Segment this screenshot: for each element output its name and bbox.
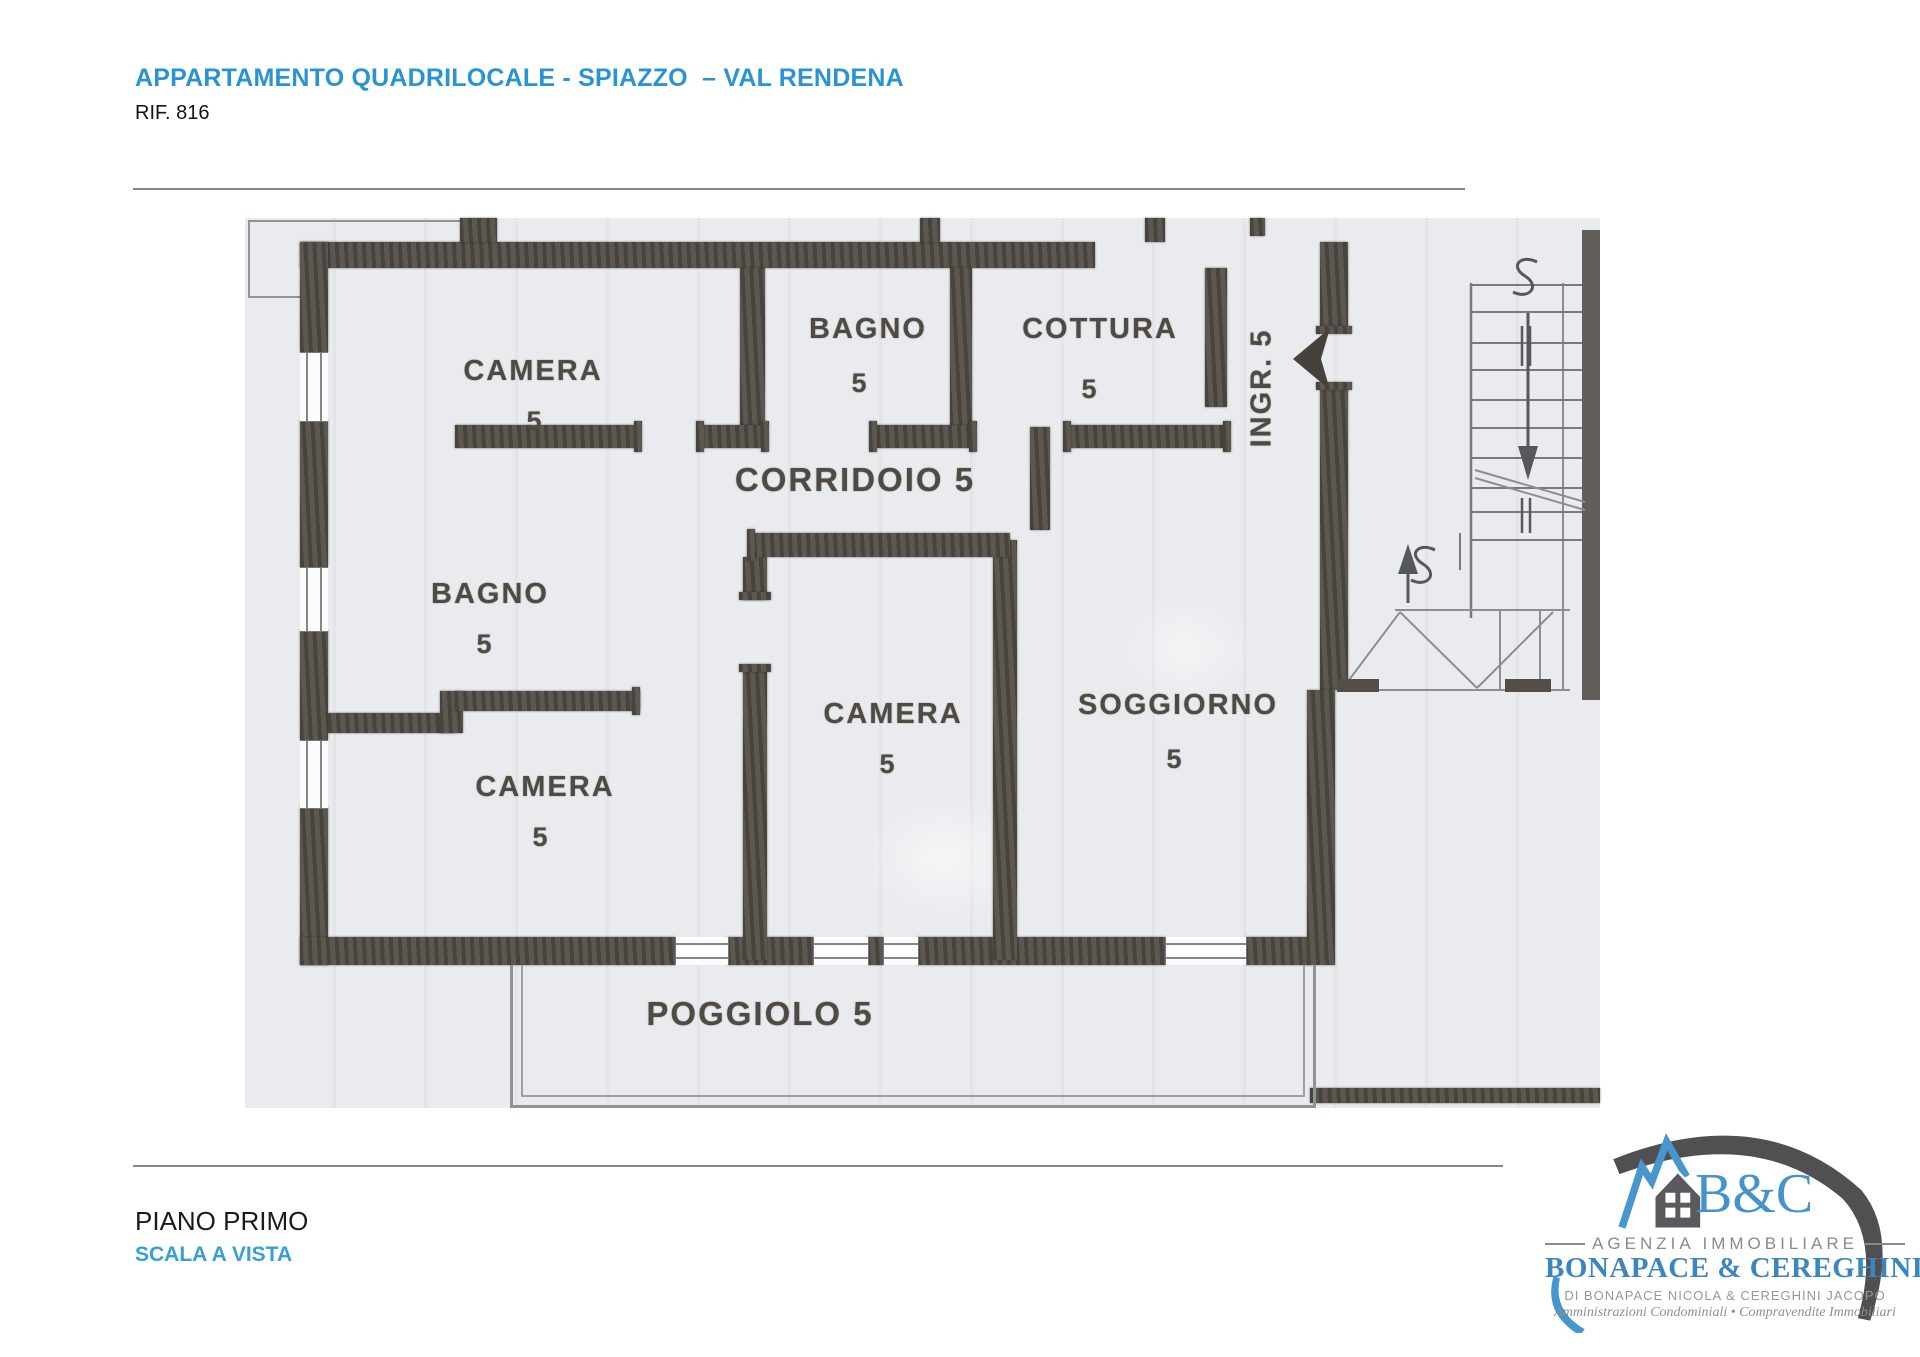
room-label-soggiorno: SOGGIORNO <box>1078 689 1278 722</box>
room-label-corridoio: CORRIDOIO 5 <box>735 461 975 499</box>
agency-name: BONAPACE & CEREGHINI <box>1545 1252 1905 1285</box>
room-label-bagno-1: BAGNO <box>809 313 927 346</box>
room-size-camera-3: 5 <box>879 749 896 780</box>
wall-segment <box>300 242 1095 268</box>
wall-segment <box>1205 268 1227 407</box>
wall-segment <box>1310 1088 1600 1103</box>
wall-segment <box>455 425 640 448</box>
stairwell-drawing <box>1285 218 1600 720</box>
stair-down-arrow <box>1518 446 1538 480</box>
door-jamb <box>696 421 704 452</box>
wall-segment <box>1250 218 1265 236</box>
room-size-cottura: 5 <box>1081 374 1098 405</box>
room-label-poggiolo: POGGIOLO 5 <box>646 995 873 1033</box>
wall-segment <box>920 218 940 242</box>
window-marker <box>1165 937 1247 965</box>
break-line-symbol <box>1513 259 1537 294</box>
reference-number: RIF. 816 <box>135 102 209 125</box>
room-label-bagno-2: BAGNO <box>431 578 549 611</box>
agency-logo: B&C AGENZIA IMMOBILIARE BONAPACE & CEREG… <box>1545 1122 1905 1340</box>
landing-wall <box>1337 679 1379 692</box>
wall-segment <box>1245 937 1310 965</box>
wall-segment <box>328 713 455 733</box>
floorplan-scan: CAMERA 5 BAGNO 5 COTTURA 5 CORRIDOIO 5 I… <box>245 218 1600 1108</box>
wall-segment <box>300 937 675 965</box>
wall-segment <box>300 630 328 740</box>
door-jamb <box>869 421 877 452</box>
balcony-outline <box>510 965 1316 1108</box>
wall-segment <box>300 242 328 352</box>
wall-segment <box>1067 425 1227 448</box>
window-marker <box>300 740 328 809</box>
wall-segment <box>1307 690 1335 965</box>
room-size-bagno-1: 5 <box>851 368 868 399</box>
room-size-camera-1: 5 <box>526 406 543 437</box>
divider-top <box>133 188 1465 190</box>
wall-segment <box>993 540 1017 960</box>
door-jamb <box>1063 421 1071 452</box>
window-marker <box>300 352 328 422</box>
stair-up-arrow <box>1398 544 1418 574</box>
door-jamb <box>739 592 771 600</box>
tagline-rule-right <box>1865 1243 1905 1245</box>
wall-segment <box>1145 218 1165 242</box>
wall-segment <box>743 670 767 960</box>
logo-tagline-row: AGENZIA IMMOBILIARE <box>1545 1234 1905 1254</box>
room-label-cottura: COTTURA <box>1022 313 1178 346</box>
landing-lines <box>1340 610 1570 690</box>
floor-label: PIANO PRIMO <box>135 1206 308 1237</box>
page-title: APPARTAMENTO QUADRILOCALE - SPIAZZO – VA… <box>135 64 904 93</box>
logo-monogram: B&C <box>1695 1162 1813 1226</box>
door-jamb <box>761 421 769 452</box>
window-marker <box>675 937 729 965</box>
neighbour-outline <box>248 220 460 222</box>
room-label-ingresso: INGR. 5 <box>1246 329 1279 448</box>
wall-segment <box>300 420 328 567</box>
door-jamb <box>747 529 755 561</box>
window-marker <box>300 567 328 632</box>
stair-note-label: SCALA A VISTA <box>135 1243 292 1267</box>
wall-segment <box>753 533 1010 557</box>
wall-segment <box>867 937 883 965</box>
door-jamb <box>1223 421 1231 452</box>
wall-segment <box>700 425 765 448</box>
wall-segment <box>1030 427 1050 530</box>
door-jamb <box>632 687 640 715</box>
room-label-camera-1: CAMERA <box>463 355 602 388</box>
door-jamb <box>739 664 771 672</box>
window-marker <box>883 937 919 965</box>
room-size-bagno-2: 5 <box>476 629 493 660</box>
room-label-camera-2: CAMERA <box>475 771 614 804</box>
balcony-inner-line <box>521 965 1305 1097</box>
landing-wall <box>1505 679 1551 692</box>
logo-tagline: AGENZIA IMMOBILIARE <box>1592 1234 1858 1254</box>
neighbour-outline <box>248 220 250 298</box>
room-label-camera-3: CAMERA <box>823 698 962 731</box>
neighbour-outline <box>248 296 302 298</box>
window-marker <box>813 937 869 965</box>
listing-page: APPARTAMENTO QUADRILOCALE - SPIAZZO – VA… <box>0 0 1920 1357</box>
room-size-camera-2: 5 <box>532 822 549 853</box>
agency-services: Amministrazioni Condominiali • Compraven… <box>1545 1305 1905 1321</box>
agency-owners: DI BONAPACE NICOLA & CEREGHINI JACOPO <box>1545 1288 1905 1303</box>
tagline-rule-left <box>1545 1243 1585 1245</box>
wall-segment <box>917 937 1165 965</box>
wall-segment <box>950 268 972 435</box>
room-size-soggiorno: 5 <box>1166 744 1183 775</box>
door-jamb <box>969 421 977 452</box>
wall-segment <box>460 218 497 242</box>
divider-bottom <box>133 1165 1503 1167</box>
wall-segment <box>455 691 640 711</box>
entrance-arrow <box>1293 328 1330 390</box>
wall-segment <box>727 937 813 965</box>
scan-edge-strip <box>1582 230 1600 700</box>
wall-segment <box>877 425 973 448</box>
wall-segment <box>740 268 765 435</box>
door-jamb <box>634 421 642 452</box>
